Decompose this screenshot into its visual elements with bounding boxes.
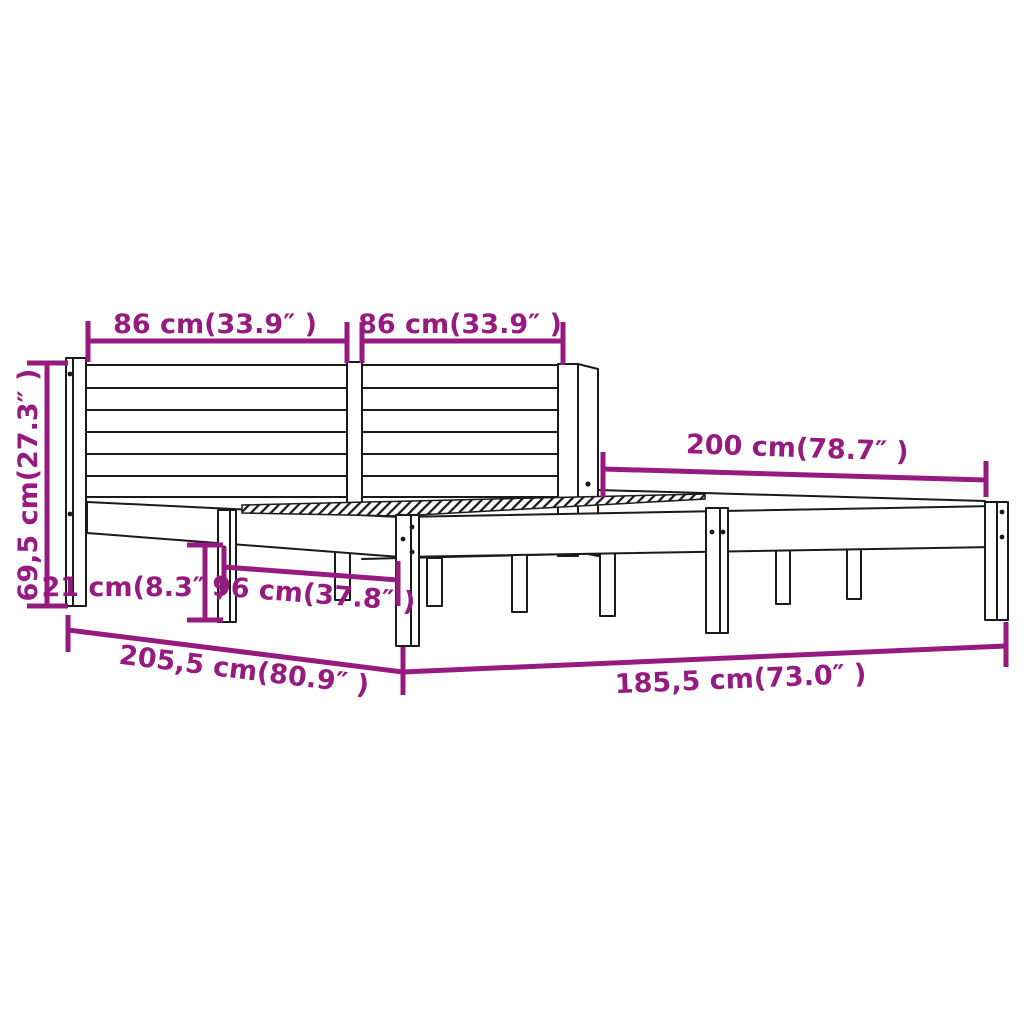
screw-dot	[401, 537, 406, 542]
back-leg	[600, 549, 615, 616]
label-total-length: 205,5 cm(80.9″ )	[117, 640, 371, 701]
label-headboard-height: 69,5 cm(27.3″ )	[13, 369, 44, 602]
screw-dot	[68, 372, 73, 377]
screw-dot	[68, 512, 73, 517]
label-total-width: 185,5 cm(73.0″ )	[614, 659, 867, 701]
label-leg-height: 21 cm(8.3″ )	[41, 572, 226, 603]
product-dimension-diagram: 86 cm(33.9″ ) 86 cm(33.9″ ) 200 cm(78.7″…	[0, 0, 1024, 1024]
foot-post	[985, 502, 1008, 620]
label-headboard-right: 86 cm(33.9″ )	[358, 309, 562, 340]
label-bed-length: 200 cm(78.7″ )	[685, 429, 909, 468]
back-leg	[847, 543, 861, 599]
headboard-left-post	[66, 358, 86, 606]
label-headboard-left: 86 cm(33.9″ )	[113, 309, 317, 340]
screw-dot	[585, 481, 590, 486]
screw-dot	[1000, 510, 1005, 515]
screw-dot	[710, 530, 715, 535]
front-leg-right	[706, 508, 728, 633]
back-leg	[776, 545, 790, 604]
screw-dot	[721, 530, 726, 535]
bed-frame-diagram: 86 cm(33.9″ ) 86 cm(33.9″ ) 200 cm(78.7″…	[0, 0, 1024, 1024]
screw-dot	[410, 525, 415, 530]
dim-total-width	[403, 622, 1006, 672]
screw-dot	[410, 550, 415, 555]
headboard-centre-post	[347, 362, 362, 513]
back-leg	[512, 553, 527, 612]
screw-dot	[1000, 535, 1005, 540]
back-leg	[427, 558, 442, 606]
